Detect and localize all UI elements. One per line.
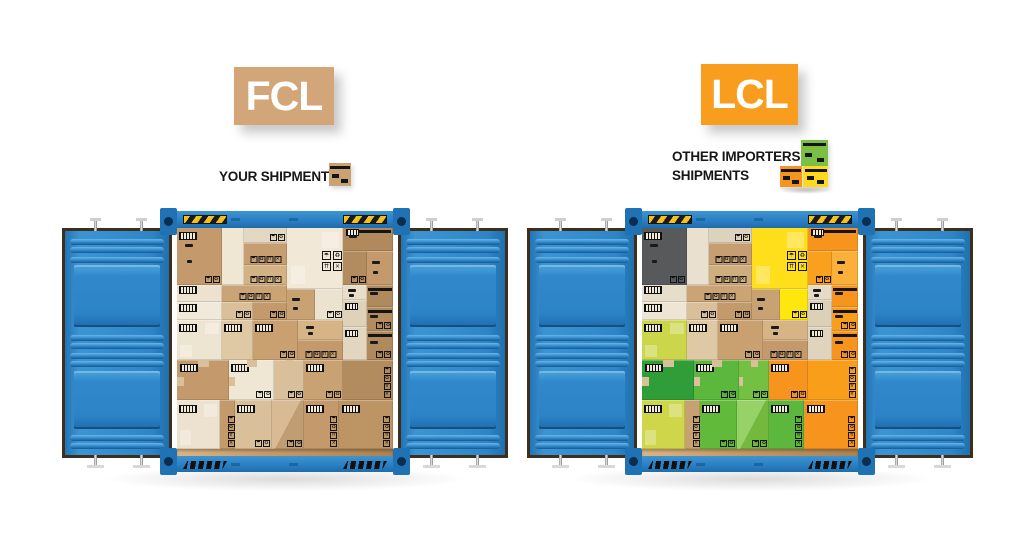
- handling-symbol-icon: ☂: [735, 311, 742, 318]
- box-notch: [286, 360, 293, 367]
- handling-symbol-icon: ☂: [288, 391, 295, 398]
- door-ridge: [535, 361, 629, 367]
- cargo-box: [752, 289, 780, 320]
- handling-symbol-icon: ♻: [693, 424, 700, 431]
- symbol-column: ☂♻⇈×: [383, 416, 390, 447]
- barcode: [237, 405, 255, 413]
- handling-symbol-icon: ♻: [313, 351, 320, 358]
- cargo-box: ☂♻: [808, 251, 832, 284]
- packing-tape: [833, 288, 856, 291]
- handling-symbol-icon: ♻: [264, 391, 271, 398]
- handling-symbol-icon: ♻: [278, 311, 285, 318]
- door-ridge: [535, 335, 629, 341]
- cargo-box: ☂♻⇈×: [687, 285, 752, 303]
- box-notch: [751, 360, 758, 367]
- lcl-container: ☂♻☂♻☂♻⇈×☂♻⇈×☂♻⇈×☂♻☂♻⇈×☂♻☂♻☂♻☂♻☂♻☂♻⇈×☂♻☂♻…: [527, 211, 973, 472]
- fcl-lcl-infographic: FCL LCL YOUR SHIPMENT OTHER IMPORTERS' S…: [0, 0, 1024, 539]
- door-ridge: [535, 257, 629, 263]
- vent-tread: [343, 461, 387, 469]
- door-ridge: [871, 435, 965, 441]
- box-notch: [229, 377, 235, 386]
- symbol-column: ☂♻⇈×: [330, 416, 337, 447]
- hinge-pin: [94, 218, 97, 231]
- box-mark: [757, 298, 765, 301]
- handling-symbol-icon: ♻: [743, 234, 750, 241]
- symbol-row: ☂♻: [841, 322, 856, 329]
- handling-symbol-icon: ☂: [384, 367, 391, 374]
- cargo-box: [642, 400, 685, 449]
- symbol-row: ☂♻⇈×: [715, 256, 746, 263]
- hinge-pin: [605, 218, 608, 231]
- door-ridge: [871, 335, 965, 341]
- cargo-box: [763, 320, 808, 340]
- box-mark: [813, 289, 821, 292]
- door-panel: [539, 371, 625, 429]
- handling-symbol-icon: ♻: [247, 293, 254, 300]
- barcode: [807, 405, 825, 413]
- barcode: [179, 304, 197, 312]
- box-mark: [758, 307, 763, 310]
- cargo-box: ☂♻: [694, 360, 739, 400]
- cargo-box: ☂♻⇈×: [287, 227, 343, 289]
- handling-symbol-icon: ♻: [849, 322, 856, 329]
- box-mark: [306, 326, 314, 329]
- cargo-box: ☂♻: [253, 302, 288, 320]
- handling-symbol-icon: ☂: [792, 311, 799, 318]
- box-notch: [177, 377, 184, 386]
- barcode: [179, 286, 197, 294]
- box-tape: [330, 166, 349, 169]
- handling-symbol-icon: ☂: [255, 440, 262, 447]
- lcl-legend-line1: OTHER IMPORTERS': [672, 147, 803, 166]
- lcl-label-text: LCL: [711, 71, 788, 118]
- corner-casting: [160, 208, 177, 235]
- handling-symbol-icon: ⇈: [795, 432, 802, 439]
- handling-symbol-icon: ♻: [333, 251, 342, 260]
- handling-symbol-icon: ♻: [359, 276, 366, 283]
- barcode: [179, 324, 197, 332]
- door-ridge: [871, 343, 965, 349]
- box-mark: [293, 307, 298, 310]
- symbol-row: ☂♻: [670, 276, 685, 283]
- handling-symbol-icon: ⇈: [322, 262, 331, 271]
- handling-symbol-icon: ♻: [383, 424, 390, 431]
- symbol-row: ☂♻: [326, 391, 341, 398]
- handling-symbol-icon: ☂: [849, 367, 856, 374]
- box-mark: [348, 289, 356, 292]
- handling-symbol-icon: ⇈: [731, 256, 738, 263]
- handling-symbol-icon: ×: [739, 276, 746, 283]
- container-door-left: [62, 228, 172, 458]
- handling-symbol-icon: ×: [849, 391, 856, 398]
- symbol-row: ☂♻: [205, 276, 220, 283]
- handling-symbol-icon: ☂: [376, 322, 383, 329]
- handling-symbol-icon: ×: [274, 276, 281, 283]
- handling-symbol-icon: ♻: [244, 311, 251, 318]
- cargo-box: [367, 285, 393, 307]
- box-mark: [807, 176, 814, 180]
- cargo-box: ☂♻⇈×: [709, 265, 752, 285]
- handling-symbol-icon: ☂: [848, 416, 855, 423]
- door-panel: [875, 371, 961, 429]
- box-highlight: [670, 323, 684, 333]
- box-mark: [771, 326, 779, 329]
- handling-symbol-icon: ♻: [296, 391, 303, 398]
- door-ridge: [70, 343, 164, 349]
- handling-symbol-icon: ⇈: [693, 432, 700, 439]
- box-mark: [652, 260, 657, 263]
- box-highlight: [756, 266, 771, 285]
- rail-dashes: [231, 218, 339, 221]
- symbol-row: ☂♻⇈×: [704, 293, 735, 300]
- barcode: [644, 286, 662, 294]
- hinge-pin: [476, 218, 479, 231]
- box-highlight: [645, 345, 657, 357]
- top-rail: [169, 211, 401, 228]
- cargo-box: [832, 285, 858, 307]
- handling-symbol-icon: ♻: [295, 440, 302, 447]
- symbol-row: ☂♻: [752, 440, 767, 447]
- symbol-row: ☂♻⇈×: [250, 256, 281, 263]
- handling-symbol-icon: ♻: [728, 440, 735, 447]
- handling-symbol-icon: ♻: [778, 351, 785, 358]
- door-ridge: [871, 443, 965, 449]
- handling-symbol-icon: ×: [384, 391, 391, 398]
- door-ridge: [406, 335, 500, 341]
- symbol-row: ☂♻: [351, 276, 366, 283]
- box-mark: [773, 332, 778, 335]
- handling-symbol-icon: ☂: [250, 256, 257, 263]
- handling-symbol-icon: ☂: [721, 391, 728, 398]
- hinge-pin: [895, 218, 898, 231]
- handling-symbol-icon: ☂: [287, 440, 294, 447]
- cargo-box: ☂♻⇈×: [298, 340, 343, 360]
- handling-symbol-icon: ☂: [841, 351, 848, 358]
- packing-tape: [833, 310, 856, 313]
- cargo-box: ☂♻: [739, 360, 769, 400]
- hinge-pin: [895, 455, 898, 468]
- cargo-box: ☂♻⇈×: [769, 400, 804, 449]
- handling-symbol-icon: ☂: [228, 416, 235, 423]
- handling-symbol-icon: ⇈: [266, 256, 273, 263]
- barcode: [306, 364, 324, 372]
- cargo-box: ☂♻: [315, 289, 343, 320]
- symbol-row: ☂♻: [288, 391, 303, 398]
- door-ridge: [70, 353, 164, 359]
- box-mark: [332, 174, 339, 178]
- handling-symbol-icon: ☂: [305, 351, 312, 358]
- handling-symbol-icon: ♻: [335, 311, 342, 318]
- handling-symbol-icon: ×: [739, 256, 746, 263]
- cargo-box: [177, 320, 222, 360]
- symbol-row: ☂♻: [287, 440, 302, 447]
- fcl-legend-label: YOUR SHIPMENT: [219, 169, 329, 184]
- cargo-box: [177, 302, 222, 320]
- cargo-box: ☂♻: [272, 400, 304, 449]
- handling-symbol-icon: ♻: [799, 391, 806, 398]
- corner-casting: [625, 448, 642, 475]
- corner-casting: [393, 448, 410, 475]
- handling-symbol-icon: ☂: [752, 440, 759, 447]
- cargo-box: ☂♻: [780, 289, 808, 320]
- handling-symbol-icon: ♻: [723, 256, 730, 263]
- cargo-box: ☂♻: [769, 360, 808, 400]
- symbol-row: ☂♻: [792, 311, 807, 318]
- hazard-stripe: [183, 215, 227, 224]
- cargo-box: ☂♻⇈×: [339, 400, 393, 449]
- cargo-box: ☂♻: [367, 331, 393, 360]
- cargo-box: ☂♻: [700, 400, 737, 449]
- cargo-box: [222, 227, 244, 285]
- handling-symbol-icon: ♻: [712, 293, 719, 300]
- bottom-rail: [634, 456, 866, 472]
- symbol-row: ☂♻: [270, 234, 285, 241]
- container-door-right: [863, 228, 973, 458]
- handling-symbol-icon: ⇈: [383, 432, 390, 439]
- cargo-box: ☂♻: [687, 302, 717, 320]
- box-mark: [835, 292, 843, 295]
- handling-symbol-icon: ⇈: [384, 383, 391, 390]
- box-mark: [835, 341, 843, 344]
- handling-symbol-icon: ☂: [236, 311, 243, 318]
- door-ridge: [535, 353, 629, 359]
- door-ridge: [70, 361, 164, 367]
- barcode: [255, 324, 273, 332]
- door-ridge: [406, 247, 500, 253]
- top-rail: [634, 211, 866, 228]
- cargo-box: [367, 251, 393, 284]
- door-ridge: [70, 257, 164, 263]
- handling-symbol-icon: ♻: [384, 322, 391, 329]
- cargo-box: ☂♻: [343, 251, 367, 284]
- handling-symbol-icon: ♻: [760, 440, 767, 447]
- container-body: ☂♻☂♻☂♻⇈×☂♻⇈×☂♻⇈×☂♻☂♻⇈×☂♻☂♻☂♻☂♻☂♻☂♻⇈×☂♻☂♻…: [160, 211, 410, 472]
- box-mark: [837, 261, 845, 264]
- door-panel: [74, 265, 160, 327]
- door-panel: [410, 371, 496, 429]
- cargo-box: [343, 327, 367, 360]
- container-body: ☂♻☂♻☂♻⇈×☂♻⇈×☂♻⇈×☂♻☂♻⇈×☂♻☂♻☂♻☂♻☂♻☂♻⇈×☂♻☂♻…: [625, 211, 875, 472]
- cargo-box: ☂♻: [642, 227, 687, 285]
- door-ridge: [535, 247, 629, 253]
- handling-symbol-icon: ×: [329, 351, 336, 358]
- cargo-box: ☂♻: [709, 227, 752, 243]
- door-panel: [74, 371, 160, 429]
- handling-symbol-icon: ♻: [800, 311, 807, 318]
- door-ridge: [406, 257, 500, 263]
- handling-symbol-icon: ×: [330, 440, 337, 447]
- cargo-box: ☂♻⇈×: [244, 265, 287, 285]
- handling-symbol-icon: ♻: [824, 276, 831, 283]
- symbol-column: ☂♻⇈×: [384, 367, 391, 398]
- hinge-pin: [559, 218, 562, 231]
- handling-symbol-icon: ♻: [849, 375, 856, 382]
- handling-symbol-icon: ×: [728, 293, 735, 300]
- box-tape: [805, 169, 827, 172]
- door-ridge: [535, 435, 629, 441]
- barcode: [346, 229, 359, 236]
- box-mark: [838, 271, 843, 274]
- symbol-row: ☂♻: [280, 351, 295, 358]
- box-notch: [712, 360, 722, 367]
- door-ridge: [406, 361, 500, 367]
- box-mark: [372, 261, 380, 264]
- cargo-box: ☂♻⇈×: [220, 400, 235, 449]
- cargo-box: ☂♻⇈×: [304, 400, 339, 449]
- handling-symbol-icon: ♻: [278, 234, 285, 241]
- symbol-row: ☂♻⇈×: [770, 351, 801, 358]
- packing-tape: [368, 334, 391, 337]
- container-interior: ☂♻☂♻☂♻⇈×☂♻⇈×☂♻⇈×☂♻☂♻⇈×☂♻☂♻☂♻☂♻☂♻☂♻⇈×☂♻☂♻…: [642, 227, 858, 458]
- handling-symbol-icon: ☂: [720, 440, 727, 447]
- box-mark: [370, 292, 378, 295]
- handling-symbol-icon: ♻: [228, 424, 235, 431]
- barcode: [644, 405, 662, 413]
- symbol-row: ☂♻: [735, 311, 750, 318]
- handling-symbol-icon: ☂: [715, 276, 722, 283]
- box-mark: [341, 179, 348, 183]
- box-tape: [803, 143, 827, 146]
- corner-casting: [625, 208, 642, 235]
- symbol-row: ☂♻: [841, 351, 856, 358]
- bottom-rail: [169, 456, 401, 472]
- box-highlight: [291, 266, 306, 285]
- handling-symbol-icon: ☂: [787, 251, 796, 260]
- barcode: [644, 232, 662, 240]
- door-ridge: [535, 443, 629, 449]
- rail-dashes: [696, 218, 804, 221]
- handling-symbol-icon: ×: [848, 440, 855, 447]
- symbol-row: ☂♻: [816, 276, 831, 283]
- cargo-box: [832, 251, 858, 284]
- box-highlight: [204, 404, 217, 417]
- box-stack-shadow: [781, 186, 831, 194]
- handling-symbol-icon: ☂: [383, 416, 390, 423]
- cargo-box: [808, 227, 858, 251]
- door-ridge: [406, 435, 500, 441]
- hazard-stripe: [648, 215, 692, 224]
- handling-symbol-icon: ☂: [330, 416, 337, 423]
- box-mark: [308, 332, 313, 335]
- hinge-pin: [94, 455, 97, 468]
- barcode: [810, 330, 823, 337]
- cargo-box: ☂♻: [737, 400, 769, 449]
- box-highlight: [322, 232, 339, 248]
- hinge-pin: [140, 455, 143, 468]
- box-mark: [185, 244, 193, 247]
- handling-symbol-icon: ☂: [704, 293, 711, 300]
- box-mark: [292, 298, 300, 301]
- box-mark: [805, 153, 812, 157]
- corner-casting: [858, 448, 875, 475]
- your-shipment-box-icon: [329, 163, 351, 186]
- fcl-label-text: FCL: [246, 73, 323, 120]
- barcode: [771, 405, 789, 413]
- cargo-box: [642, 302, 687, 320]
- handling-symbol-icon: ☂: [715, 256, 722, 263]
- cargo-box: ☂♻⇈×: [709, 243, 752, 265]
- handling-symbol-icon: ⇈: [321, 351, 328, 358]
- door-panel: [875, 265, 961, 327]
- cargo-box: [687, 320, 717, 360]
- symbol-column: ☂♻⇈×: [693, 416, 700, 447]
- box-mark: [370, 341, 378, 344]
- handling-symbol-icon: ♻: [384, 351, 391, 358]
- barcode: [644, 324, 662, 332]
- handling-symbol-icon: ☂: [326, 391, 333, 398]
- handling-symbol-icon: ♻: [213, 276, 220, 283]
- handling-symbol-icon: ×: [274, 256, 281, 263]
- handling-symbol-icon: ☂: [816, 276, 823, 283]
- box-highlight: [645, 430, 656, 445]
- barcode: [180, 364, 198, 372]
- handling-symbol-icon: ☂: [770, 351, 777, 358]
- handling-symbol-icon: ×: [228, 440, 235, 447]
- hinge-pin: [559, 455, 562, 468]
- packing-tape: [833, 334, 856, 337]
- symbol-row: ☂♻: [376, 351, 391, 358]
- container-door-right: [398, 228, 508, 458]
- door-ridge: [535, 239, 629, 245]
- importer-box-yellow-icon: [803, 166, 828, 187]
- door-ridge: [871, 257, 965, 263]
- handling-symbol-icon: ♻: [848, 424, 855, 431]
- box-highlight: [180, 345, 192, 357]
- cargo-box: [808, 300, 832, 327]
- door-ridge: [406, 343, 500, 349]
- box-notch: [694, 377, 700, 386]
- handling-symbol-icon: ♻: [330, 424, 337, 431]
- vent-tread: [808, 461, 852, 469]
- cargo-box: [177, 400, 220, 449]
- fcl-label-badge: FCL: [234, 67, 334, 125]
- rail-dashes: [231, 463, 339, 466]
- handling-symbol-icon: ♻: [288, 351, 295, 358]
- cargo-box: ☂♻: [832, 307, 858, 331]
- cargo-box: [642, 285, 687, 303]
- cargo-box: ☂♻: [718, 302, 753, 320]
- handling-symbol-icon: ×: [693, 440, 700, 447]
- handling-symbol-icon: ☂: [791, 391, 798, 398]
- cargo-box: ☂♻: [718, 320, 763, 360]
- door-panel: [410, 265, 496, 327]
- box-notch: [274, 377, 278, 386]
- handling-symbol-icon: ×: [795, 440, 802, 447]
- corner-casting: [160, 448, 177, 475]
- handling-symbol-icon: ♻: [729, 391, 736, 398]
- hinge-pin: [605, 455, 608, 468]
- lcl-label-badge: LCL: [701, 64, 798, 125]
- cargo-area: ☂♻☂♻☂♻⇈×☂♻⇈×☂♻⇈×☂♻☂♻⇈×☂♻☂♻☂♻☂♻☂♻☂♻⇈×☂♻☂♻…: [177, 227, 393, 449]
- cargo-box: ☂♻: [222, 302, 252, 320]
- box-highlight: [180, 430, 191, 445]
- handling-symbol-icon: ☂: [270, 311, 277, 318]
- box-mark: [792, 180, 799, 184]
- cargo-box: [343, 227, 393, 251]
- handling-symbol-icon: ×: [794, 351, 801, 358]
- handling-symbol-icon: ☂: [735, 234, 742, 241]
- handling-symbol-icon: ⇈: [848, 432, 855, 439]
- barcode: [224, 324, 242, 332]
- cargo-box: [808, 327, 832, 360]
- handling-symbol-icon: ⇈: [266, 276, 273, 283]
- barcode: [702, 405, 720, 413]
- handling-symbol-icon: ⇈: [255, 293, 262, 300]
- corner-casting: [393, 208, 410, 235]
- cargo-box: ☂♻⇈×: [685, 400, 700, 449]
- door-ridge: [871, 361, 965, 367]
- fcl-legend-text: YOUR SHIPMENT: [219, 167, 329, 186]
